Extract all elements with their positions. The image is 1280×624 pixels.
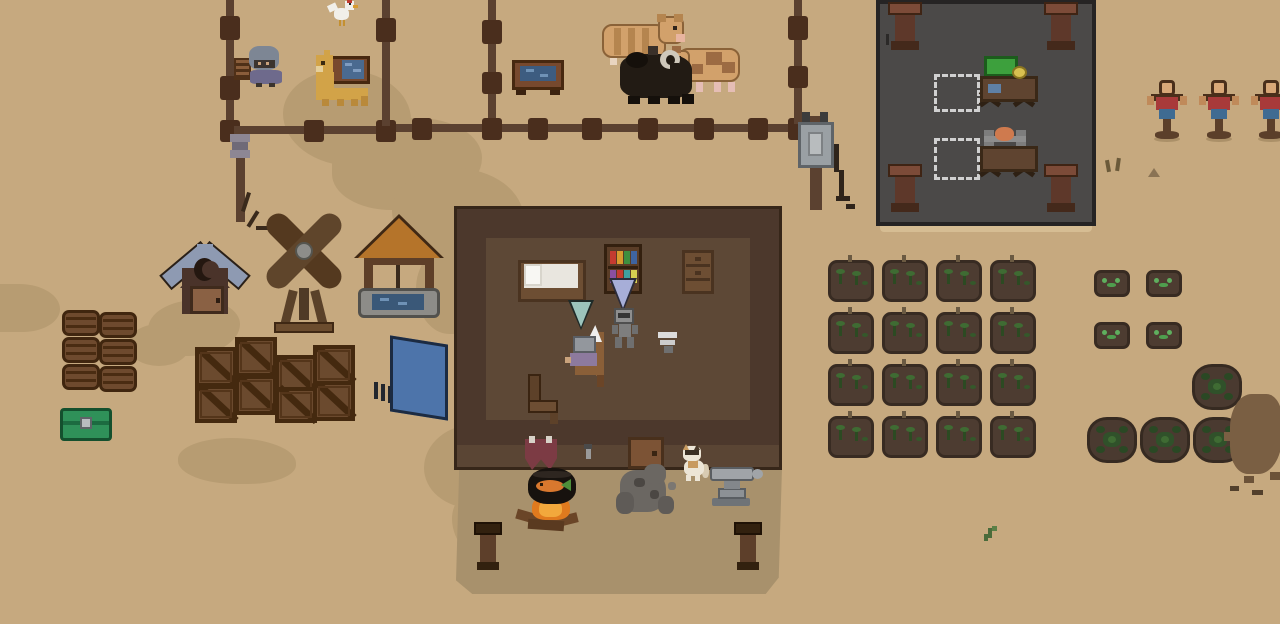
- fence-post: [638, 118, 658, 140]
- pillar[interactable]: [1044, 164, 1078, 177]
- fish-eye: [540, 483, 543, 486]
- sprout-leaf: [1024, 437, 1030, 441]
- anvil-horn: [752, 469, 763, 479]
- training-dummy-1-2[interactable]: [1198, 80, 1240, 144]
- dummy-hand: [1147, 96, 1154, 105]
- feed-trough-part-2: [526, 69, 534, 72]
- crate[interactable]: [275, 387, 317, 423]
- seedling-planter-2-2[interactable]: [1146, 322, 1182, 349]
- leg: [351, 99, 358, 106]
- bench-lamp: [1012, 66, 1027, 79]
- seedling-planter-2-1[interactable]: [1094, 322, 1130, 349]
- grass-tufts: [1106, 158, 1126, 174]
- post-body: [740, 535, 756, 564]
- ear: [674, 14, 683, 22]
- fence-post: [694, 118, 714, 140]
- insulator: [230, 150, 250, 158]
- twig: [848, 307, 852, 314]
- hooded-wanderer[interactable]: [234, 46, 286, 88]
- blueprint-marker[interactable]: [934, 138, 980, 180]
- chicken[interactable]: [328, 0, 356, 28]
- anvil-waist: [724, 480, 740, 489]
- bush-plot-part-2: [1096, 426, 1105, 433]
- shed-part-8: [202, 261, 219, 278]
- feed-trough[interactable]: [512, 54, 566, 96]
- hooded-wanderer-part-2: [236, 69, 249, 72]
- crate-part-2: [200, 390, 232, 418]
- sprout-leaf: [906, 271, 915, 276]
- post-body: [480, 535, 496, 564]
- cable: [836, 196, 850, 201]
- barrel-stack-2[interactable]: [99, 312, 137, 392]
- sprout-leaf: [970, 333, 976, 337]
- barrel-stack-2-part-4: [103, 346, 133, 349]
- sprout-leaf: [970, 385, 976, 389]
- seedling-planter-1-2[interactable]: [1146, 270, 1182, 297]
- dummy-hand: [1251, 96, 1258, 105]
- dummy-belt: [1263, 109, 1279, 119]
- crate[interactable]: [313, 381, 355, 421]
- crate-part-2: [318, 386, 350, 416]
- wild-sprout-part-1: [992, 526, 997, 531]
- sprout-leaf: [862, 333, 868, 337]
- grass-tufts-part-0: [1105, 160, 1111, 173]
- bush-plot-single-part-3: [1224, 373, 1233, 380]
- sprout: [1159, 283, 1168, 287]
- sprout-leaf: [906, 427, 915, 432]
- golem-leg: [627, 337, 634, 348]
- eye: [349, 3, 351, 5]
- house-part-49: [584, 444, 592, 449]
- campfire[interactable]: [516, 464, 590, 536]
- crate-part-2: [318, 350, 350, 380]
- barrel-stack-2-part-5: [103, 354, 133, 357]
- sprout-leaf: [916, 281, 922, 285]
- wild-sprout-part-2: [984, 534, 988, 541]
- dirt-mound-part-0: [1230, 394, 1280, 474]
- twig: [902, 411, 906, 418]
- golem-body: [619, 324, 631, 337]
- barrel-stack-1-part-2: [66, 325, 96, 328]
- stone-rubble-part-1: [644, 464, 666, 484]
- sprout-leaf: [998, 321, 1007, 326]
- pebble: [1148, 168, 1160, 177]
- barrel-stack-1[interactable]: [62, 310, 100, 390]
- fence-post: [412, 118, 432, 140]
- twig: [902, 255, 906, 262]
- dummy-base: [1155, 131, 1179, 139]
- rope: [396, 265, 400, 289]
- solar-panel[interactable]: [374, 338, 452, 422]
- training-dummy-1-3[interactable]: [1250, 80, 1280, 144]
- crate[interactable]: [195, 385, 237, 423]
- book: [610, 251, 616, 264]
- twig: [848, 411, 852, 418]
- sprout-leaf: [852, 323, 861, 328]
- bush-plot-single-part-2: [1201, 373, 1210, 380]
- farm-plot-2-3[interactable]: [936, 312, 982, 354]
- game-viewport: [0, 0, 1280, 624]
- farm-plot-4-4[interactable]: [990, 416, 1036, 458]
- cable: [846, 204, 855, 209]
- farm-plot-1-3[interactable]: [936, 260, 982, 302]
- chair-seat: [575, 366, 602, 375]
- latch: [80, 417, 92, 429]
- post-cap: [474, 522, 502, 535]
- house: [454, 206, 782, 472]
- yak-part-5: [670, 63, 679, 71]
- dummy-hand: [1180, 96, 1187, 105]
- crate[interactable]: [195, 347, 237, 387]
- fence-post: [482, 72, 502, 94]
- sprout-leaf: [836, 269, 845, 274]
- yak[interactable]: [618, 46, 698, 106]
- sprout-leaf: [890, 321, 899, 326]
- dirt-patch-small: [128, 324, 190, 366]
- sprout-leaf: [1014, 375, 1023, 380]
- fence-post: [582, 118, 602, 140]
- house-part-43: [550, 413, 558, 424]
- insulator: [230, 134, 250, 142]
- spot: [722, 62, 735, 73]
- barrel: [62, 364, 100, 390]
- bush-plot-part-4: [1149, 446, 1158, 453]
- leg: [686, 475, 691, 481]
- blueprint-marker[interactable]: [934, 74, 980, 112]
- bush-plot-1-1[interactable]: [1087, 417, 1137, 463]
- hooded-wanderer-part-3: [236, 75, 249, 78]
- panel: [808, 132, 823, 156]
- barrel: [62, 337, 100, 363]
- golem-leg: [615, 337, 622, 348]
- twig: [848, 359, 852, 366]
- barrel-stack-1-part-7: [66, 371, 96, 374]
- farm-plot-4-1[interactable]: [828, 416, 874, 458]
- stone-workshop-part-5: [891, 41, 919, 50]
- barrel: [99, 366, 137, 392]
- sprout-leaf: [862, 437, 868, 441]
- sprout-leaf: [944, 373, 953, 378]
- stone-workshop-part-7: [1051, 15, 1071, 43]
- roof-peak: [197, 244, 213, 257]
- twig: [1010, 411, 1014, 418]
- sprout: [1159, 335, 1168, 339]
- spot: [706, 52, 722, 65]
- sprout-leaf: [916, 333, 922, 337]
- sprout-leaf: [916, 437, 922, 441]
- farm-plot-2-4[interactable]: [990, 312, 1036, 354]
- leg: [610, 58, 617, 65]
- pillow: [524, 264, 542, 286]
- sprout-leaf: [1014, 427, 1023, 432]
- house-part-39: [660, 340, 675, 345]
- dirt-mound-part-3: [1244, 476, 1254, 483]
- crate-part-2: [240, 380, 272, 410]
- golem-arm: [612, 325, 618, 334]
- knight-body: [570, 353, 597, 366]
- sprout: [1102, 330, 1107, 335]
- foot: [269, 83, 275, 87]
- mast: [299, 288, 309, 320]
- stone-workshop-part-11: [891, 203, 919, 212]
- leg: [628, 96, 640, 104]
- barrel-stack-1-part-4: [66, 344, 96, 347]
- sprout-leaf: [1024, 281, 1030, 285]
- well-part-8: [380, 298, 389, 301]
- farm-plot-1-2[interactable]: [882, 260, 928, 302]
- house-part-40: [664, 346, 673, 353]
- dirt-mound-part-5: [1252, 490, 1263, 495]
- bush-plot-part-5: [1172, 446, 1181, 453]
- barrel-stack-2-part-1: [103, 319, 133, 322]
- book: [624, 251, 630, 264]
- leg: [322, 99, 329, 106]
- sprout: [1167, 278, 1172, 283]
- grass-tufts-part-1: [1115, 158, 1121, 171]
- twig: [956, 255, 960, 262]
- yard-post-left[interactable]: [474, 522, 502, 572]
- sprout-leaf: [906, 375, 915, 380]
- leg: [361, 96, 368, 106]
- sprout-leaf: [852, 427, 861, 432]
- barrel-stack-2-part-7: [103, 373, 133, 376]
- wild-sprout: [984, 526, 998, 542]
- stone-workshop-part-8: [1047, 41, 1075, 50]
- sprout: [1102, 278, 1107, 283]
- banner-tie: [546, 436, 552, 443]
- crate-part-2: [280, 360, 312, 390]
- fence-post: [788, 66, 808, 88]
- sprout-leaf: [998, 373, 1007, 378]
- sprout-leaf: [960, 375, 969, 380]
- farm-plot-2-1[interactable]: [828, 312, 874, 354]
- campfire-part-6: [533, 471, 571, 478]
- farm-plot-4-2[interactable]: [882, 416, 928, 458]
- barrel-stack-2-part-2: [103, 327, 133, 330]
- stone-rubble-part-3: [658, 496, 674, 514]
- leg: [343, 20, 345, 26]
- barrel: [62, 310, 100, 336]
- sprout-leaf: [836, 321, 845, 326]
- stone-workshop: [876, 0, 1096, 234]
- crate-part-2: [240, 342, 272, 372]
- well[interactable]: [354, 214, 444, 322]
- windmill[interactable]: [248, 192, 366, 338]
- sprout-leaf: [944, 321, 953, 326]
- door-handle: [216, 298, 220, 303]
- house-part-42: [528, 400, 558, 413]
- anvil-top: [710, 467, 754, 481]
- sprout: [1115, 330, 1120, 335]
- cloak: [250, 70, 282, 84]
- farm-plot-2-2[interactable]: [882, 312, 928, 354]
- seated-knight[interactable]: [573, 336, 596, 353]
- pillar[interactable]: [888, 164, 922, 177]
- barrel: [99, 339, 137, 365]
- sprout-leaf: [836, 373, 845, 378]
- anvil[interactable]: [708, 462, 764, 510]
- drawer-handle: [695, 271, 701, 275]
- log: [528, 519, 565, 531]
- training-dummy-1-1[interactable]: [1146, 80, 1188, 144]
- twig: [1010, 359, 1014, 366]
- golem-visor: [618, 313, 630, 318]
- hub: [295, 242, 313, 260]
- twig: [902, 307, 906, 314]
- work-bench[interactable]: [980, 146, 1038, 172]
- twig: [956, 359, 960, 366]
- stone-workshop-part-4: [895, 15, 915, 43]
- knight-hand: [565, 357, 571, 363]
- eye: [321, 61, 325, 65]
- sprout-leaf: [852, 271, 861, 276]
- sprout-leaf: [960, 271, 969, 276]
- leg: [339, 20, 341, 26]
- pillar[interactable]: [1044, 2, 1078, 15]
- foot: [256, 83, 262, 87]
- sprout-leaf: [862, 385, 868, 389]
- farm-plot-4-3[interactable]: [936, 416, 982, 458]
- fence-post: [220, 16, 240, 40]
- sprout-leaf: [970, 437, 976, 441]
- beak: [353, 5, 358, 8]
- stone-rubble-part-5: [650, 490, 659, 499]
- sprout-leaf: [1014, 323, 1023, 328]
- sprout: [1167, 330, 1172, 335]
- sprout: [1154, 278, 1159, 283]
- ear: [657, 14, 666, 22]
- twig: [956, 307, 960, 314]
- workpiece: [995, 127, 1014, 141]
- bush-plot-part-5: [1119, 446, 1128, 453]
- sprout-leaf: [890, 425, 899, 430]
- house-part-16: [686, 264, 710, 267]
- sprout-leaf: [960, 427, 969, 432]
- roof: [358, 218, 440, 258]
- barrel-stack-1-part-8: [66, 379, 96, 382]
- dummy-base: [1259, 131, 1280, 139]
- farm-plot-3-3[interactable]: [936, 364, 982, 406]
- hump: [626, 52, 648, 68]
- stone-rubble-part-4: [634, 478, 645, 487]
- fence-energizer[interactable]: [794, 108, 856, 220]
- sprout-leaf: [852, 375, 861, 380]
- fence-post: [376, 18, 396, 42]
- twig: [1010, 255, 1014, 262]
- seedling-planter-1-1[interactable]: [1094, 270, 1130, 297]
- sprout-leaf: [1014, 271, 1023, 276]
- snout: [676, 34, 685, 42]
- twig: [1010, 307, 1014, 314]
- dummy-belt: [1159, 109, 1175, 119]
- shed[interactable]: [166, 224, 244, 316]
- sprout-leaf: [890, 373, 899, 378]
- bush-plot-part-6: [1161, 436, 1169, 443]
- farm-plot-1-4[interactable]: [990, 260, 1036, 302]
- sprout: [1107, 335, 1116, 339]
- bush-plot-part-6: [1214, 436, 1222, 443]
- dummy-belt: [1211, 109, 1227, 119]
- bush-plot-part-3: [1119, 426, 1128, 433]
- dirt-mound[interactable]: [1224, 390, 1280, 494]
- yard-post-right[interactable]: [734, 522, 762, 572]
- fence-post: [482, 20, 502, 44]
- sprout-leaf: [1024, 385, 1030, 389]
- pillar[interactable]: [888, 2, 922, 15]
- eye: [266, 62, 269, 65]
- farm-plot-3-1[interactable]: [828, 364, 874, 406]
- sprout-leaf: [960, 323, 969, 328]
- leg: [682, 94, 694, 104]
- stone-rubble-part-6: [668, 482, 676, 490]
- base: [274, 322, 334, 333]
- fence-post: [482, 118, 502, 140]
- leg: [668, 96, 680, 104]
- green-chest[interactable]: [60, 404, 114, 444]
- sprout-leaf: [916, 385, 922, 389]
- crate-part-2: [200, 352, 232, 382]
- dummy-hand: [1199, 96, 1206, 105]
- bench-tool: [988, 84, 1001, 93]
- llama[interactable]: [308, 50, 370, 106]
- anvil-base: [718, 488, 746, 499]
- banner-tie: [529, 436, 535, 443]
- stone-workshop-part-13: [1051, 177, 1071, 205]
- bush-plot-1-2[interactable]: [1140, 417, 1190, 463]
- mortar[interactable]: [658, 332, 677, 338]
- sprout-leaf: [944, 269, 953, 274]
- twig: [902, 359, 906, 366]
- ear: [648, 46, 658, 55]
- barrel-stack-1-part-1: [66, 317, 96, 320]
- dummy-hand: [1232, 96, 1239, 105]
- well-part-9: [398, 302, 407, 305]
- farm-plot-1-1[interactable]: [828, 260, 874, 302]
- back-patch: [688, 460, 698, 468]
- bush-plot-part-6: [1108, 436, 1116, 443]
- farm-plot-3-2[interactable]: [882, 364, 928, 406]
- eye: [258, 62, 261, 65]
- fence-post: [748, 118, 768, 140]
- beam: [364, 258, 434, 265]
- crate[interactable]: [235, 337, 277, 377]
- bush-plot-part-2: [1202, 426, 1211, 433]
- sprout-leaf: [836, 425, 845, 430]
- crate-part-2: [280, 392, 312, 418]
- cable: [839, 170, 844, 198]
- leg: [374, 382, 378, 399]
- crate[interactable]: [313, 345, 355, 385]
- sprout: [1107, 283, 1116, 287]
- crate[interactable]: [235, 375, 277, 415]
- foot: [550, 90, 560, 95]
- door-knob: [652, 451, 657, 456]
- bush-plot-single-part-4: [1201, 393, 1210, 400]
- dirt-patch-crates-left: [178, 438, 296, 484]
- stone-rubble[interactable]: [616, 462, 676, 522]
- post-base: [737, 562, 759, 570]
- fence-post: [528, 118, 548, 140]
- stone-workshop-part-10: [895, 177, 915, 205]
- eye: [673, 26, 677, 30]
- bush-plot-single-part-6: [1213, 383, 1221, 390]
- fence-rail-left: [488, 0, 496, 126]
- twig: [956, 411, 960, 418]
- twig: [848, 255, 852, 262]
- barrel: [99, 312, 137, 338]
- farm-plot-3-4[interactable]: [990, 364, 1036, 406]
- leg: [728, 82, 735, 92]
